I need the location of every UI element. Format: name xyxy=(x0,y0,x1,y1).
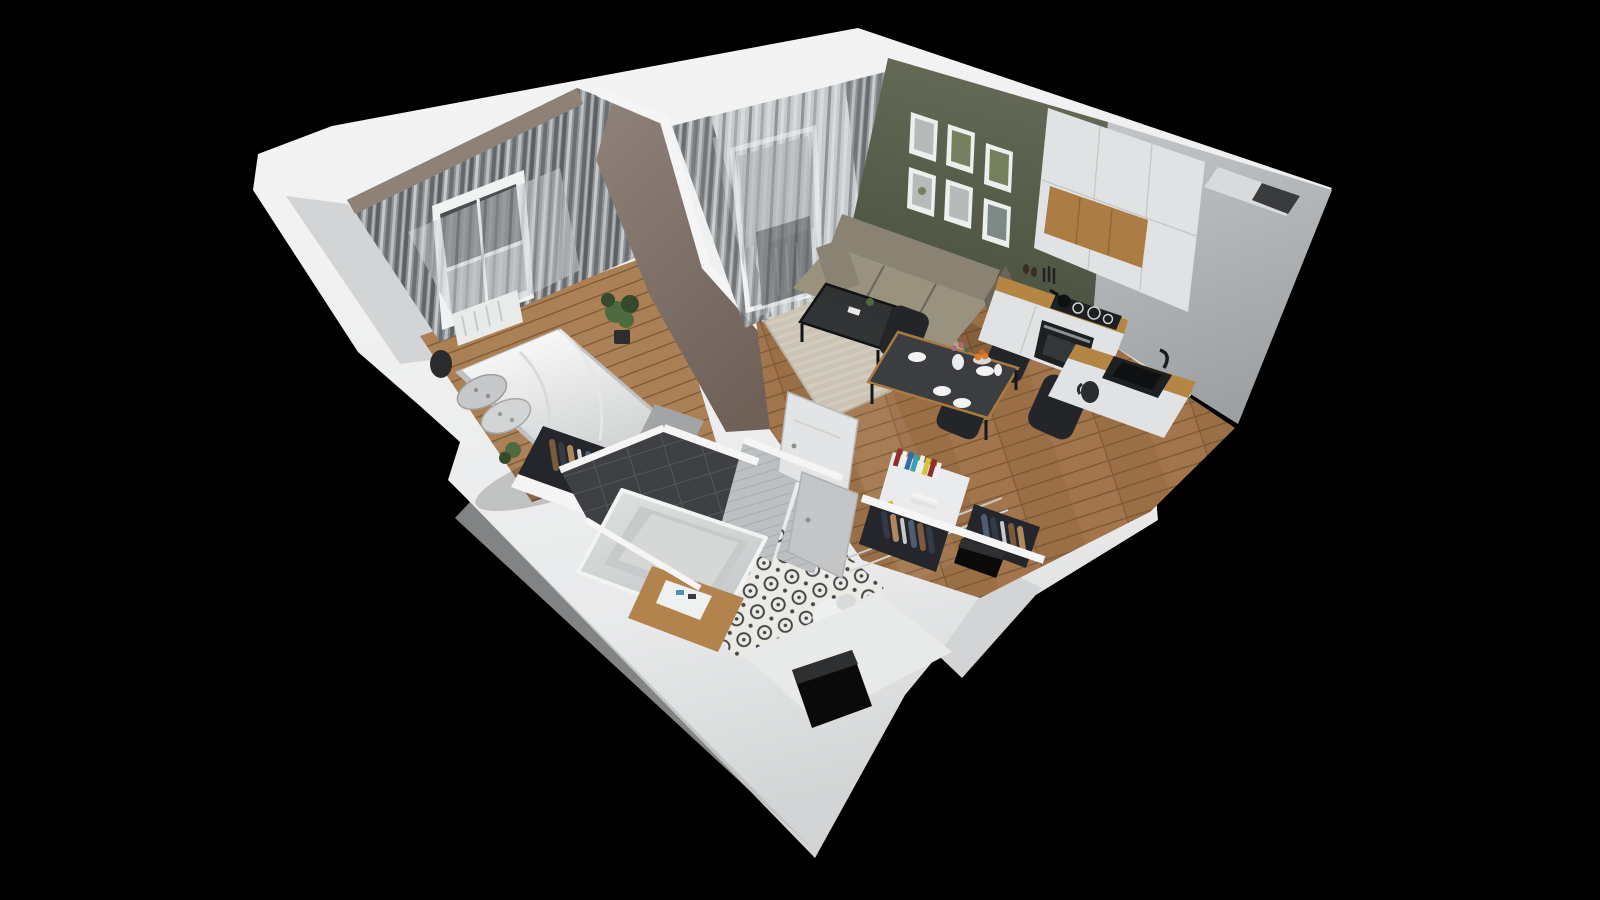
trash-bin xyxy=(430,350,452,378)
floorplan-canvas xyxy=(0,0,1600,900)
vase xyxy=(952,354,964,370)
pan xyxy=(1058,295,1071,308)
apartment-3d-floorplan xyxy=(0,0,1600,900)
carafe xyxy=(994,364,1002,376)
